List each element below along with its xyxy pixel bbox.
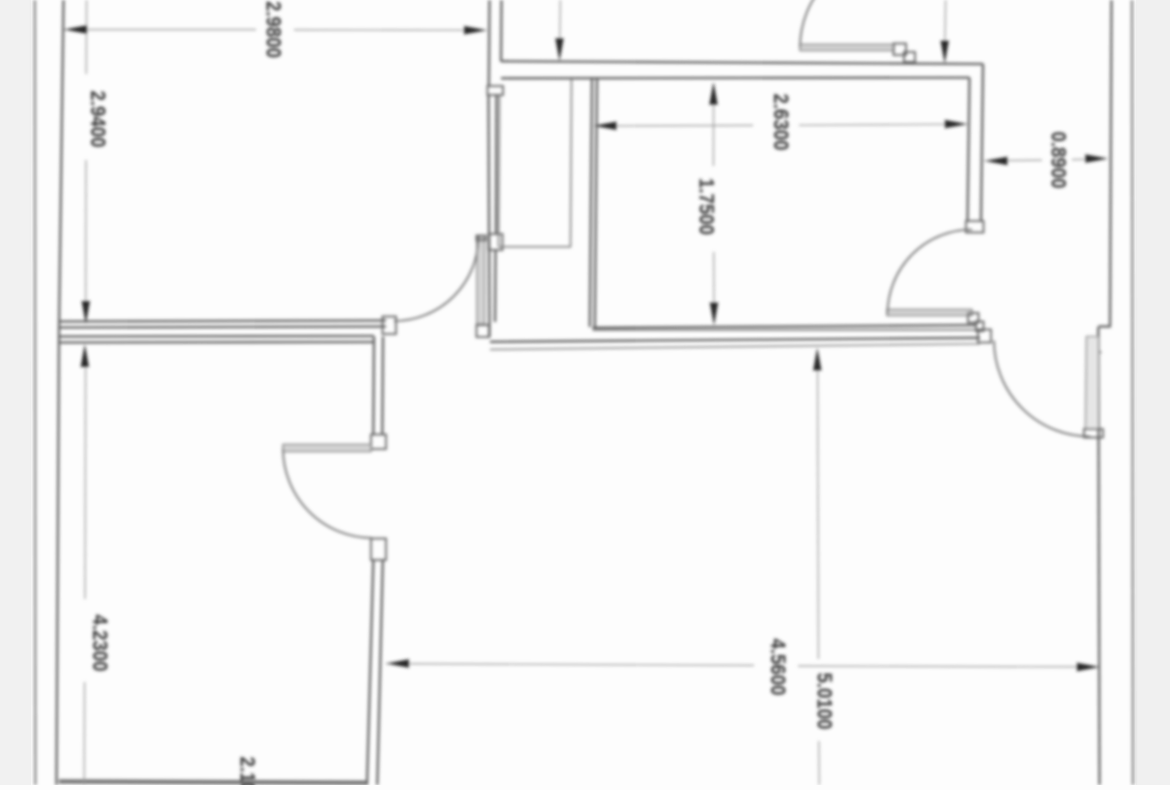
svg-text:0.8900: 0.8900 — [1047, 132, 1070, 189]
svg-text:2.9800: 2.9800 — [262, 1, 285, 58]
svg-text:1.7500: 1.7500 — [695, 178, 718, 235]
svg-text:2.6300: 2.6300 — [769, 94, 792, 151]
svg-text:4.2300: 4.2300 — [88, 615, 111, 672]
svg-text:5.0100: 5.0100 — [813, 673, 836, 730]
svg-text:2.9400: 2.9400 — [86, 91, 109, 148]
svg-text:2.100: 2.100 — [236, 757, 259, 786]
svg-text:4.5600: 4.5600 — [766, 639, 789, 696]
